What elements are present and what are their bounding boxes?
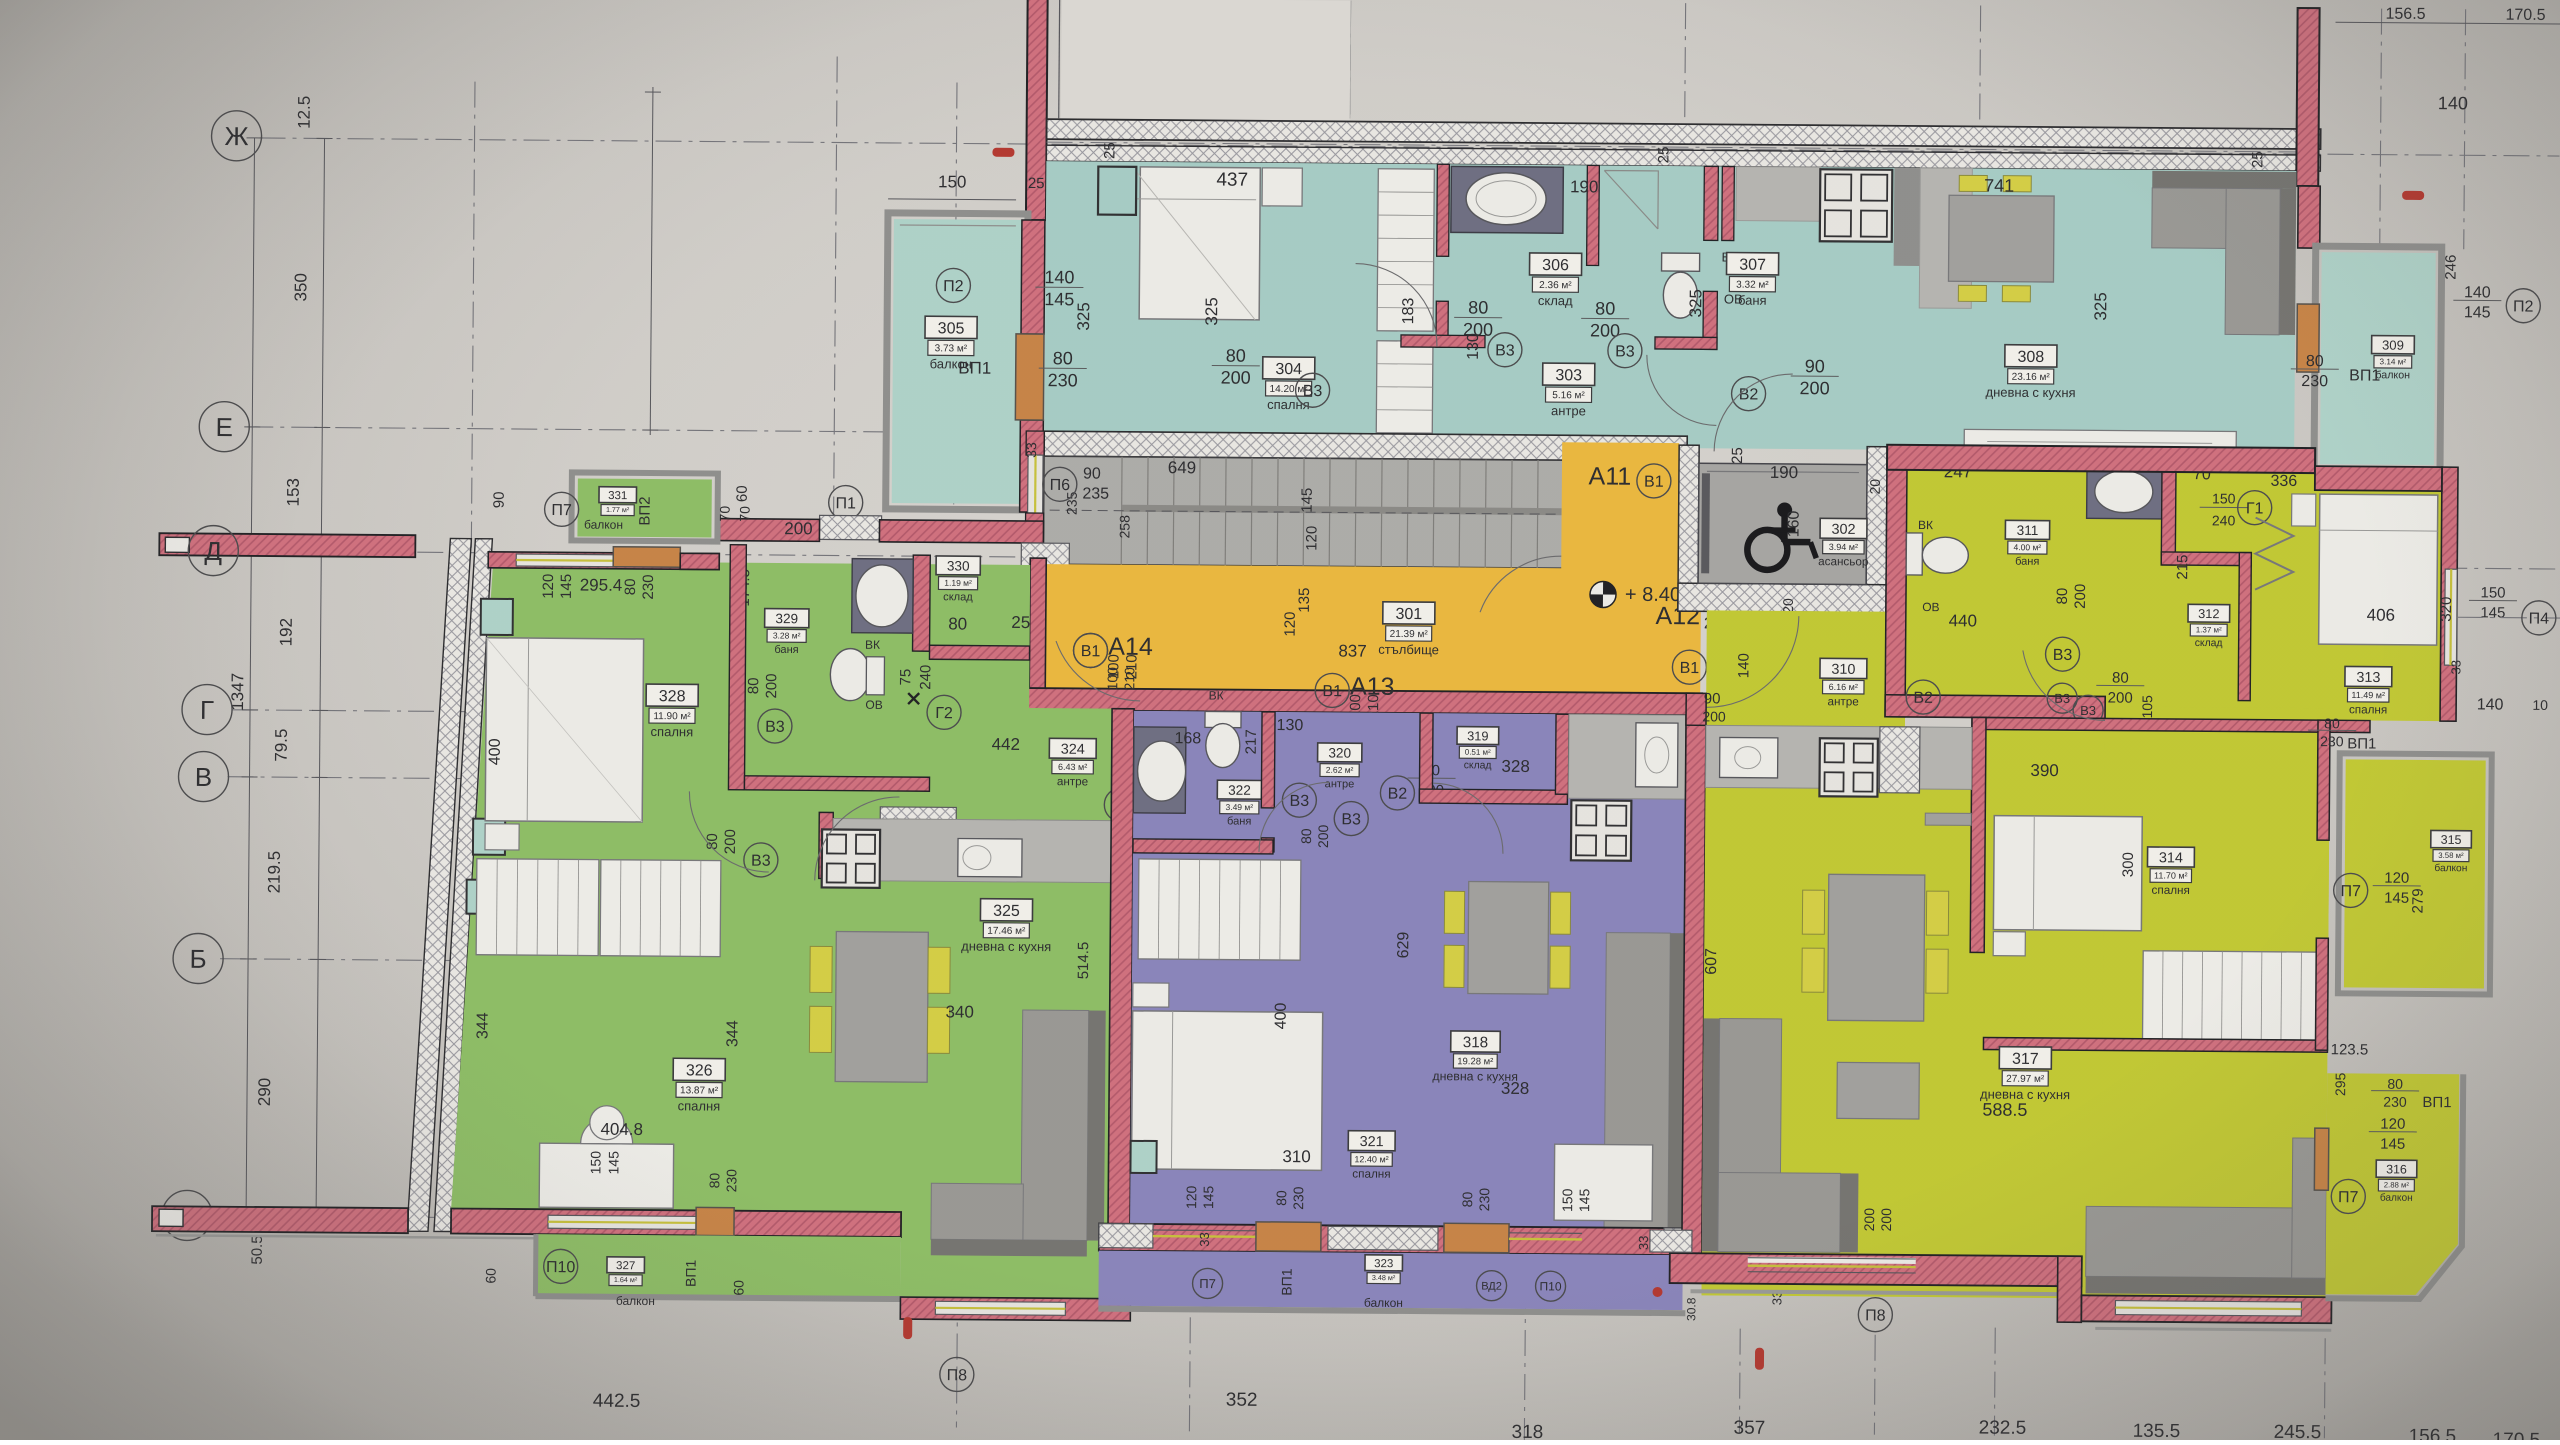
svg-text:ВП1: ВП1 [2422,1094,2451,1111]
svg-text:В1: В1 [1680,660,1700,677]
svg-text:442: 442 [992,735,1021,754]
svg-text:80: 80 [1273,1190,1289,1206]
svg-text:80: 80 [622,578,639,595]
svg-text:135.5: 135.5 [2133,1421,2181,1440]
svg-text:80: 80 [2306,353,2324,370]
svg-text:328: 328 [1501,757,1530,776]
svg-text:спалня: спалня [2151,884,2189,897]
svg-text:В1: В1 [1081,643,1101,660]
svg-text:70: 70 [737,506,753,522]
svg-text:3.58 м²: 3.58 м² [2438,851,2464,860]
svg-text:баня: баня [2015,556,2039,568]
svg-text:235: 235 [1064,491,1080,515]
svg-text:160: 160 [1785,511,1802,538]
svg-text:145: 145 [2380,1136,2405,1153]
svg-text:1.77 м²: 1.77 м² [606,505,630,514]
svg-text:170.5: 170.5 [2493,1430,2541,1440]
svg-text:344: 344 [474,1012,491,1039]
svg-text:балкон: балкон [2375,369,2410,381]
svg-text:В3: В3 [2054,691,2070,706]
svg-text:ВК: ВК [1918,518,1933,532]
svg-text:130: 130 [1277,717,1304,734]
svg-text:60: 60 [483,1268,499,1284]
svg-text:П7: П7 [1199,1276,1216,1291]
svg-text:230: 230 [2320,733,2344,749]
svg-text:323: 323 [1374,1258,1393,1270]
svg-text:25: 25 [1655,147,1672,164]
svg-text:В3: В3 [2053,647,2073,664]
svg-text:321: 321 [1360,1134,1384,1150]
svg-text:дневна с кухня: дневна с кухня [1985,385,2075,401]
svg-text:230: 230 [1048,370,1078,390]
svg-text:П4: П4 [2529,611,2550,628]
svg-text:741: 741 [1984,176,2014,196]
svg-text:200: 200 [784,519,813,538]
svg-text:Г: Г [200,695,214,725]
svg-text:В3: В3 [765,719,785,736]
svg-text:306: 306 [1542,257,1569,274]
svg-text:246: 246 [2442,255,2459,280]
svg-text:442.5: 442.5 [593,1391,641,1412]
svg-text:200: 200 [1800,378,1830,398]
svg-text:150: 150 [2212,490,2236,506]
svg-text:145: 145 [605,1151,621,1175]
svg-text:629: 629 [1395,931,1412,958]
svg-text:спалня: спалня [1352,1167,1390,1180]
svg-text:П8: П8 [1865,1307,1886,1324]
svg-text:80: 80 [1459,1191,1475,1207]
svg-text:327: 327 [616,1260,635,1272]
svg-text:230: 230 [1290,1186,1306,1210]
svg-text:Г2: Г2 [935,705,953,722]
svg-text:230: 230 [1476,1188,1492,1212]
svg-text:324: 324 [1061,742,1085,758]
svg-text:245.5: 245.5 [2274,1422,2322,1440]
svg-text:170.5: 170.5 [2505,7,2545,24]
svg-text:80: 80 [1226,346,1246,366]
svg-text:ВП1: ВП1 [1278,1268,1294,1296]
svg-text:588.5: 588.5 [1982,1100,2027,1120]
svg-text:304: 304 [1275,361,1302,378]
svg-text:200: 200 [722,829,739,854]
svg-text:153: 153 [284,478,303,507]
svg-text:140: 140 [1735,653,1752,678]
svg-text:200: 200 [2108,690,2133,707]
svg-text:80: 80 [1053,348,1073,368]
svg-text:232.5: 232.5 [1979,1418,2027,1439]
svg-text:80: 80 [1595,298,1615,318]
svg-text:80: 80 [1468,297,1488,317]
svg-text:4.00 м²: 4.00 м² [2014,542,2042,552]
svg-text:331: 331 [608,490,627,502]
svg-text:баня: баня [774,644,798,656]
svg-text:ВК: ВК [1209,688,1224,702]
svg-text:240: 240 [917,665,934,690]
svg-text:В3: В3 [1615,343,1635,360]
svg-text:3.48 м²: 3.48 м² [1372,1273,1396,1282]
svg-text:ОВ: ОВ [865,698,882,712]
svg-text:145: 145 [2464,304,2491,321]
svg-text:330: 330 [947,558,970,573]
svg-text:В3: В3 [2080,703,2096,718]
svg-text:313: 313 [2356,670,2380,686]
svg-text:склад: склад [2195,638,2223,649]
svg-text:200: 200 [1315,824,1331,848]
svg-text:302: 302 [1831,522,1855,538]
svg-text:240: 240 [2212,512,2236,528]
svg-text:80: 80 [706,1173,722,1189]
svg-text:649: 649 [1168,458,1197,477]
svg-text:80: 80 [1298,828,1314,844]
svg-text:П10: П10 [546,1259,576,1276]
svg-text:В: В [195,762,213,792]
svg-text:258: 258 [1116,515,1132,539]
svg-text:200: 200 [1221,368,1251,388]
svg-text:балкон: балкон [584,518,623,532]
svg-text:145: 145 [1576,1188,1592,1212]
svg-text:баня: баня [1738,293,1767,308]
svg-text:150: 150 [2480,584,2505,601]
svg-text:150: 150 [938,172,967,191]
svg-text:21.39 м²: 21.39 м² [1390,629,1429,640]
svg-text:318: 318 [1463,1034,1488,1051]
svg-text:6.43 м²: 6.43 м² [1058,762,1087,772]
svg-text:150: 150 [587,1151,603,1175]
svg-text:Г1: Г1 [2246,500,2264,517]
svg-text:Б: Б [189,944,206,974]
svg-text:145: 145 [1299,488,1316,513]
svg-text:303: 303 [1555,367,1582,384]
svg-text:80: 80 [2054,588,2071,605]
svg-text:2.88 м²: 2.88 м² [2384,1180,2410,1189]
svg-text:344: 344 [724,1020,741,1047]
svg-text:319: 319 [1467,728,1488,743]
svg-text:60: 60 [734,485,751,502]
svg-text:400: 400 [1273,1003,1290,1030]
svg-text:390: 390 [2030,761,2059,780]
svg-text:135: 135 [1296,588,1313,613]
svg-text:305: 305 [938,320,965,337]
svg-text:150: 150 [1559,1188,1575,1212]
svg-text:5.16 м²: 5.16 м² [1552,390,1585,401]
svg-text:90: 90 [491,491,508,508]
svg-text:ВП1: ВП1 [2349,367,2380,384]
svg-text:балкон: балкон [1364,1296,1403,1310]
svg-text:баня: баня [1227,815,1251,827]
svg-text:П2: П2 [2513,298,2534,315]
svg-text:120: 120 [1303,526,1320,551]
svg-text:50.5: 50.5 [249,1235,266,1264]
svg-text:328: 328 [1501,1079,1530,1098]
svg-text:79.5: 79.5 [272,729,291,762]
svg-text:200: 200 [2072,584,2089,609]
svg-text:антре: антре [1827,695,1858,708]
svg-text:120: 120 [1282,611,1299,636]
svg-text:105: 105 [2139,695,2155,719]
svg-text:120: 120 [540,574,557,599]
svg-text:3.28 м²: 3.28 м² [773,630,801,640]
svg-text:склад: склад [1464,760,1492,771]
svg-text:дневна с кухня: дневна с кухня [961,939,1051,955]
svg-text:Ж: Ж [224,121,248,151]
svg-text:ВП2: ВП2 [637,496,654,525]
svg-text:33: 33 [1197,1232,1212,1247]
svg-text:Е: Е [215,412,233,442]
svg-text:308: 308 [2017,349,2044,366]
svg-text:33: 33 [1023,442,1039,458]
svg-text:307: 307 [1739,257,1766,274]
svg-text:192: 192 [277,618,296,647]
svg-text:склад: склад [943,591,973,603]
svg-text:314: 314 [2159,850,2183,866]
svg-text:80: 80 [948,614,967,633]
svg-text:балкон: балкон [2434,862,2467,874]
svg-text:3.49 м²: 3.49 м² [1225,802,1253,812]
svg-text:325: 325 [2091,292,2110,321]
svg-text:33: 33 [1636,1236,1651,1251]
svg-text:437: 437 [1216,169,1248,190]
svg-text:25: 25 [1729,447,1746,464]
svg-text:80: 80 [2387,1076,2403,1092]
svg-text:156.5: 156.5 [2385,6,2425,23]
svg-text:25: 25 [2249,151,2266,168]
svg-text:140: 140 [1044,267,1074,287]
svg-text:235: 235 [1082,485,1109,502]
svg-text:322: 322 [1228,783,1251,798]
svg-text:300: 300 [2120,852,2137,877]
svg-text:П7: П7 [2340,883,2361,900]
svg-text:295: 295 [2332,1072,2348,1096]
svg-text:230: 230 [2383,1094,2407,1110]
svg-text:ВД2: ВД2 [1481,1281,1502,1293]
svg-text:2.62 м²: 2.62 м² [1326,765,1354,775]
svg-text:3.73 м²: 3.73 м² [935,343,968,354]
svg-text:П8: П8 [947,1367,968,1384]
svg-text:325: 325 [1202,297,1221,326]
svg-text:балкон: балкон [930,356,972,371]
svg-text:ВП1: ВП1 [2347,735,2376,752]
svg-text:антре: антре [1325,778,1355,790]
svg-text:склад: склад [1538,293,1573,308]
svg-text:190: 190 [1770,463,1799,482]
svg-text:168: 168 [1174,730,1201,747]
svg-text:1.64 м²: 1.64 м² [614,1275,638,1284]
svg-text:В1: В1 [1322,683,1342,700]
svg-text:325: 325 [1074,302,1093,331]
svg-text:антре: антре [1551,403,1586,418]
svg-text:200: 200 [1702,708,1726,724]
svg-text:стълбище: стълбище [1378,642,1439,657]
svg-text:2.36 м²: 2.36 м² [1539,280,1572,291]
svg-text:ОВ: ОВ [1922,600,1939,614]
svg-text:27.97 м²: 27.97 м² [2006,1074,2045,1085]
svg-text:120: 120 [2380,1116,2405,1133]
svg-text:20: 20 [1867,479,1883,495]
svg-text:325: 325 [993,903,1020,920]
svg-text:спалня: спалня [678,1098,721,1113]
svg-text:406: 406 [2367,606,2396,625]
svg-text:3.32 м²: 3.32 м² [1736,280,1769,291]
svg-text:В3: В3 [1495,342,1515,359]
svg-text:312: 312 [2198,606,2219,621]
svg-text:90: 90 [1083,465,1101,482]
svg-text:309: 309 [2382,338,2404,353]
svg-text:200: 200 [763,673,780,698]
svg-text:90: 90 [1704,690,1721,707]
svg-text:140: 140 [2464,284,2491,301]
svg-text:спалня: спалня [2349,703,2387,716]
svg-text:П6: П6 [1050,477,1071,494]
svg-text:В2: В2 [1913,690,1933,707]
svg-text:230: 230 [723,1169,739,1193]
svg-text:607: 607 [1703,948,1720,975]
svg-text:П2: П2 [943,278,964,295]
svg-text:217: 217 [1243,729,1260,754]
svg-text:19.28 м²: 19.28 м² [1457,1056,1493,1067]
svg-text:156.5: 156.5 [2409,1426,2457,1440]
svg-text:антре: антре [1057,775,1088,788]
svg-text:11.90 м²: 11.90 м² [653,711,691,722]
svg-text:140: 140 [2438,93,2468,113]
svg-text:12.40 м²: 12.40 м² [1354,1154,1388,1164]
svg-text:357: 357 [1734,1418,1766,1439]
svg-text:30.8: 30.8 [1684,1297,1698,1321]
svg-text:140: 140 [2477,696,2504,713]
svg-text:295.4: 295.4 [580,575,623,594]
svg-text:В3: В3 [1303,383,1323,400]
svg-text:329: 329 [775,611,798,626]
svg-text:514.5: 514.5 [1075,942,1092,980]
svg-text:145: 145 [1044,289,1074,309]
svg-text:120: 120 [2384,870,2409,887]
svg-text:325: 325 [1686,289,1705,318]
svg-text:340: 340 [945,1002,974,1021]
svg-text:балкон: балкон [2380,1192,2413,1204]
svg-text:350: 350 [291,273,310,302]
svg-text:145: 145 [2384,890,2409,907]
svg-text:210: 210 [1121,667,1137,691]
svg-text:П7: П7 [2338,1189,2359,1206]
svg-text:315: 315 [2441,833,2462,847]
svg-text:23.16 м²: 23.16 м² [2012,372,2051,383]
svg-text:+ 8.40: + 8.40 [1625,584,1681,606]
svg-text:320: 320 [2438,597,2455,622]
svg-text:12.5: 12.5 [295,96,314,129]
svg-text:25: 25 [1101,142,1118,159]
svg-text:100: 100 [1104,667,1120,691]
svg-text:440: 440 [1949,611,1978,630]
svg-text:326: 326 [686,1062,713,1079]
svg-text:80: 80 [2324,715,2340,731]
svg-text:200: 200 [1878,1208,1894,1232]
svg-text:25: 25 [1028,175,1045,192]
svg-text:279: 279 [2410,888,2427,913]
svg-text:В2: В2 [1739,386,1759,403]
svg-text:400: 400 [487,738,504,765]
svg-text:60: 60 [730,1280,746,1296]
svg-text:11.70 м²: 11.70 м² [2154,870,2188,880]
svg-text:75: 75 [897,669,914,686]
svg-text:200: 200 [1590,320,1620,340]
svg-text:145: 145 [2480,604,2505,621]
svg-text:33: 33 [2448,660,2463,675]
svg-text:310: 310 [1282,1147,1311,1166]
svg-text:спалня: спалня [651,724,694,739]
svg-text:10: 10 [2532,697,2548,713]
svg-text:В3: В3 [751,853,771,870]
svg-text:316: 316 [2386,1162,2407,1176]
svg-text:П10: П10 [1540,1279,1562,1293]
svg-text:A11: A11 [1588,462,1631,490]
svg-text:1.37 м²: 1.37 м² [2196,625,2222,634]
svg-text:0.51 м²: 0.51 м² [1465,748,1491,757]
svg-text:200: 200 [1861,1208,1877,1232]
svg-text:320: 320 [1328,745,1351,760]
svg-text:3.14 м²: 3.14 м² [2380,357,2407,366]
svg-text:В2: В2 [1388,786,1408,803]
svg-text:80: 80 [2112,670,2129,687]
svg-text:асансьор: асансьор [1818,555,1869,568]
svg-text:70: 70 [717,506,733,522]
svg-text:25: 25 [1011,613,1030,632]
svg-text:Д: Д [204,536,222,566]
svg-text:123.5: 123.5 [2331,1041,2369,1058]
svg-text:120: 120 [1183,1185,1199,1209]
svg-text:90: 90 [1805,356,1825,376]
svg-text:318: 318 [1511,1422,1543,1440]
svg-text:11.49 м²: 11.49 м² [2351,690,2385,700]
svg-text:215: 215 [2174,555,2191,580]
svg-text:В3: В3 [1290,793,1310,810]
svg-text:301: 301 [1395,606,1422,623]
svg-text:1.19 м²: 1.19 м² [944,578,972,588]
svg-text:336: 336 [2270,473,2297,490]
svg-text:3.94 м²: 3.94 м² [1829,542,1858,552]
svg-text:310: 310 [1831,662,1855,678]
svg-text:328: 328 [659,688,686,705]
svg-text:230: 230 [640,574,657,599]
svg-text:В1: В1 [1644,474,1664,491]
svg-text:13.87 м²: 13.87 м² [680,1085,719,1096]
svg-text:317: 317 [2012,1051,2039,1068]
svg-text:П1: П1 [835,495,856,512]
svg-text:837: 837 [1338,641,1367,660]
svg-text:ВП1: ВП1 [683,1260,699,1288]
svg-text:183: 183 [1400,297,1417,324]
svg-text:145: 145 [1200,1185,1216,1209]
svg-text:352: 352 [1226,1390,1258,1411]
svg-text:17.46 м²: 17.46 м² [987,926,1026,937]
svg-text:П7: П7 [551,502,572,519]
svg-text:290: 290 [255,1078,274,1107]
svg-text:6.16 м²: 6.16 м² [1829,682,1858,692]
svg-text:В3: В3 [1341,811,1361,828]
svg-text:190: 190 [1570,177,1599,196]
svg-text:404.8: 404.8 [600,1120,643,1139]
svg-text:130: 130 [1465,333,1482,360]
svg-text:311: 311 [2017,523,2039,538]
svg-text:ВК: ВК [865,638,880,652]
svg-text:230: 230 [2301,373,2328,390]
svg-text:80: 80 [745,677,762,694]
svg-text:балкон: балкон [616,1294,655,1308]
svg-text:219.5: 219.5 [265,851,284,894]
svg-text:145: 145 [558,574,575,599]
